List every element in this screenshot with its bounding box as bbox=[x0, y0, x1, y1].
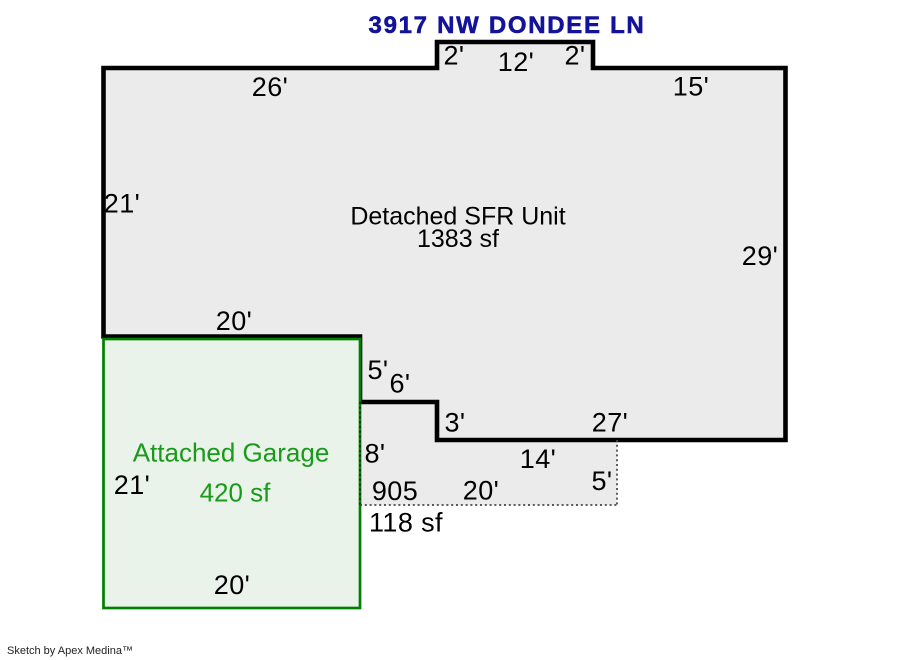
svg-text:118 sf: 118 sf bbox=[369, 508, 443, 538]
svg-text:20': 20' bbox=[214, 570, 250, 600]
svg-text:5': 5' bbox=[368, 355, 389, 385]
svg-text:26': 26' bbox=[252, 72, 288, 102]
svg-text:21': 21' bbox=[104, 189, 140, 219]
svg-text:Sketch by Apex Medina™: Sketch by Apex Medina™ bbox=[7, 645, 133, 657]
svg-text:12': 12' bbox=[498, 47, 534, 77]
svg-text:2': 2' bbox=[565, 41, 586, 71]
svg-text:14': 14' bbox=[520, 444, 556, 474]
svg-text:6': 6' bbox=[390, 369, 411, 399]
svg-text:20': 20' bbox=[216, 306, 252, 336]
svg-text:20': 20' bbox=[463, 476, 499, 506]
svg-text:8': 8' bbox=[365, 439, 386, 469]
svg-text:3': 3' bbox=[445, 408, 466, 438]
svg-text:2': 2' bbox=[444, 41, 465, 71]
svg-text:27': 27' bbox=[592, 408, 628, 438]
svg-text:Attached Garage: Attached Garage bbox=[133, 438, 330, 468]
svg-text:29': 29' bbox=[742, 241, 778, 271]
svg-text:15': 15' bbox=[673, 72, 709, 102]
svg-text:3917 NW DONDEE LN: 3917 NW DONDEE LN bbox=[369, 12, 646, 39]
svg-text:1383 sf: 1383 sf bbox=[417, 225, 499, 253]
svg-text:420 sf: 420 sf bbox=[200, 478, 272, 508]
svg-text:21': 21' bbox=[114, 470, 150, 500]
svg-text:5': 5' bbox=[592, 466, 613, 496]
svg-text:905: 905 bbox=[372, 476, 418, 506]
